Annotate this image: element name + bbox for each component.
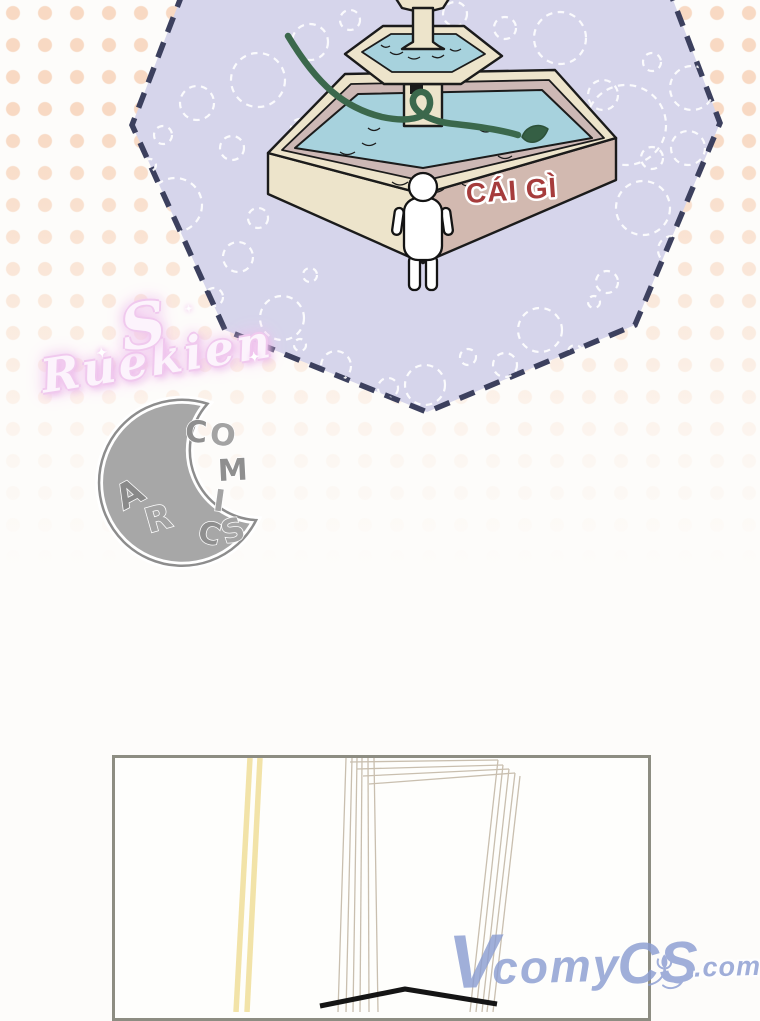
sparkle-icon: ✦ bbox=[248, 350, 261, 367]
site-watermark: V comy CS .com bbox=[447, 898, 760, 996]
sparkle-icon: ✦ bbox=[95, 345, 108, 362]
sparkle-icon: ✦ bbox=[184, 304, 194, 316]
site-watermark-mid: comy bbox=[492, 942, 621, 991]
site-watermark-suffix: .com bbox=[694, 953, 760, 982]
moon-logo: A R C O M I C S bbox=[66, 380, 269, 583]
svg-text:C: C bbox=[184, 414, 208, 450]
yellow-stripe bbox=[236, 758, 260, 1012]
figure-head bbox=[409, 173, 437, 201]
speech-text: CÁI GÌ bbox=[465, 172, 559, 209]
tulip-icon bbox=[644, 952, 685, 995]
svg-text:O: O bbox=[208, 417, 237, 454]
